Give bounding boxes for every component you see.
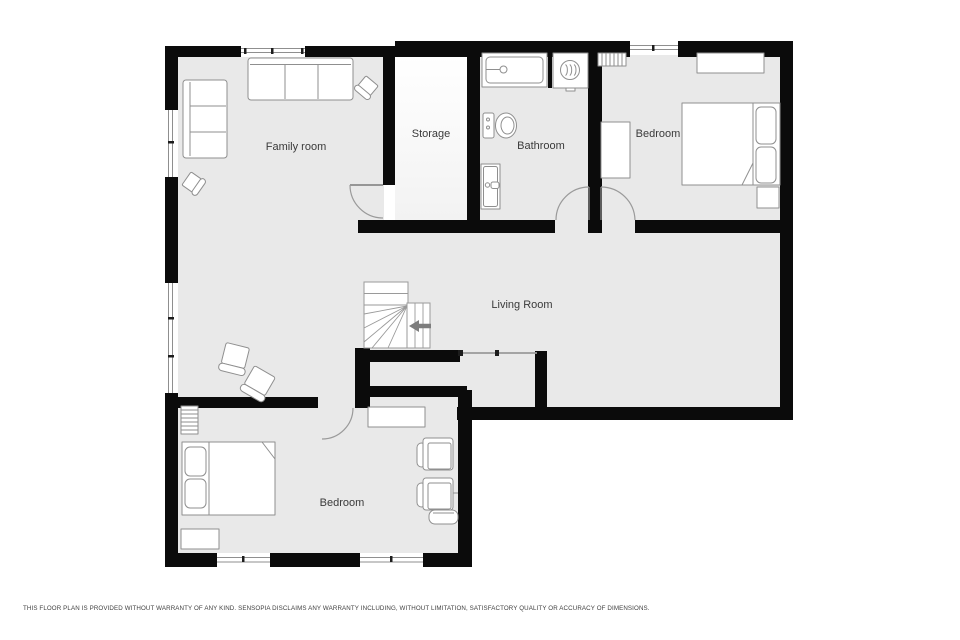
window-icon (241, 46, 305, 57)
sink-vanity-icon (481, 164, 500, 209)
window-icon (165, 283, 178, 393)
bed-icon (682, 103, 780, 185)
shelf-icon (181, 529, 219, 549)
family-room-label: Family room (266, 141, 327, 153)
pillow-icon (756, 147, 776, 183)
bathtub-icon (482, 53, 547, 87)
pillow-icon (756, 107, 776, 144)
armchair-icon (417, 438, 453, 470)
floor-plan-page: Family room Storage Bathroom Bedroom Liv… (0, 0, 960, 640)
dresser-icon (697, 53, 764, 73)
window-icon (630, 41, 678, 55)
bathroom-label: Bathroom (517, 140, 565, 152)
living-room-label: Living Room (491, 299, 552, 311)
pillow-icon (185, 447, 206, 476)
sofa-icon (248, 58, 353, 100)
toilet-icon (483, 113, 517, 138)
desk-icon (601, 122, 630, 178)
nightstand-icon (757, 187, 779, 208)
radiator-icon (181, 406, 198, 434)
loveseat-icon (183, 80, 227, 158)
window-icon (360, 553, 423, 567)
disclaimer-text: THIS FLOOR PLAN IS PROVIDED WITHOUT WARR… (23, 605, 650, 612)
bedroom-top-label: Bedroom (636, 128, 681, 140)
washer-icon (553, 53, 588, 91)
bedroom-bottom-label: Bedroom (320, 497, 365, 509)
ottoman-icon (429, 510, 458, 524)
dresser-icon (368, 407, 425, 427)
bed-icon (182, 442, 275, 515)
floor-plan: Family room Storage Bathroom Bedroom Liv… (0, 0, 960, 640)
storage-label: Storage (412, 128, 451, 140)
window-icon (165, 110, 178, 177)
armchair-icon (417, 478, 458, 510)
pillow-icon (185, 479, 206, 508)
radiator-icon (598, 53, 626, 66)
window-icon (217, 553, 270, 567)
